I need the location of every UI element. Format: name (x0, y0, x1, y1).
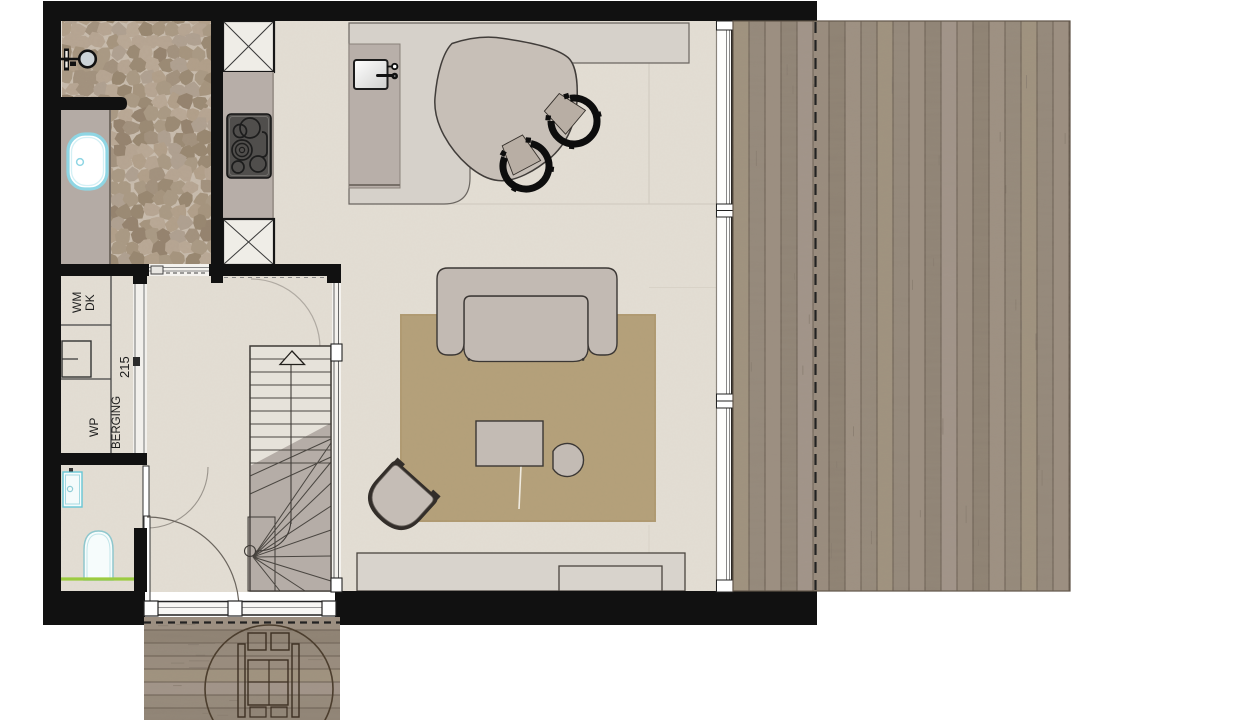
svg-text:WM: WM (70, 292, 84, 313)
svg-text:DK: DK (83, 294, 97, 311)
svg-text:215: 215 (117, 356, 132, 378)
svg-text:BERGING: BERGING (111, 396, 123, 449)
svg-text:WP: WP (87, 418, 101, 437)
